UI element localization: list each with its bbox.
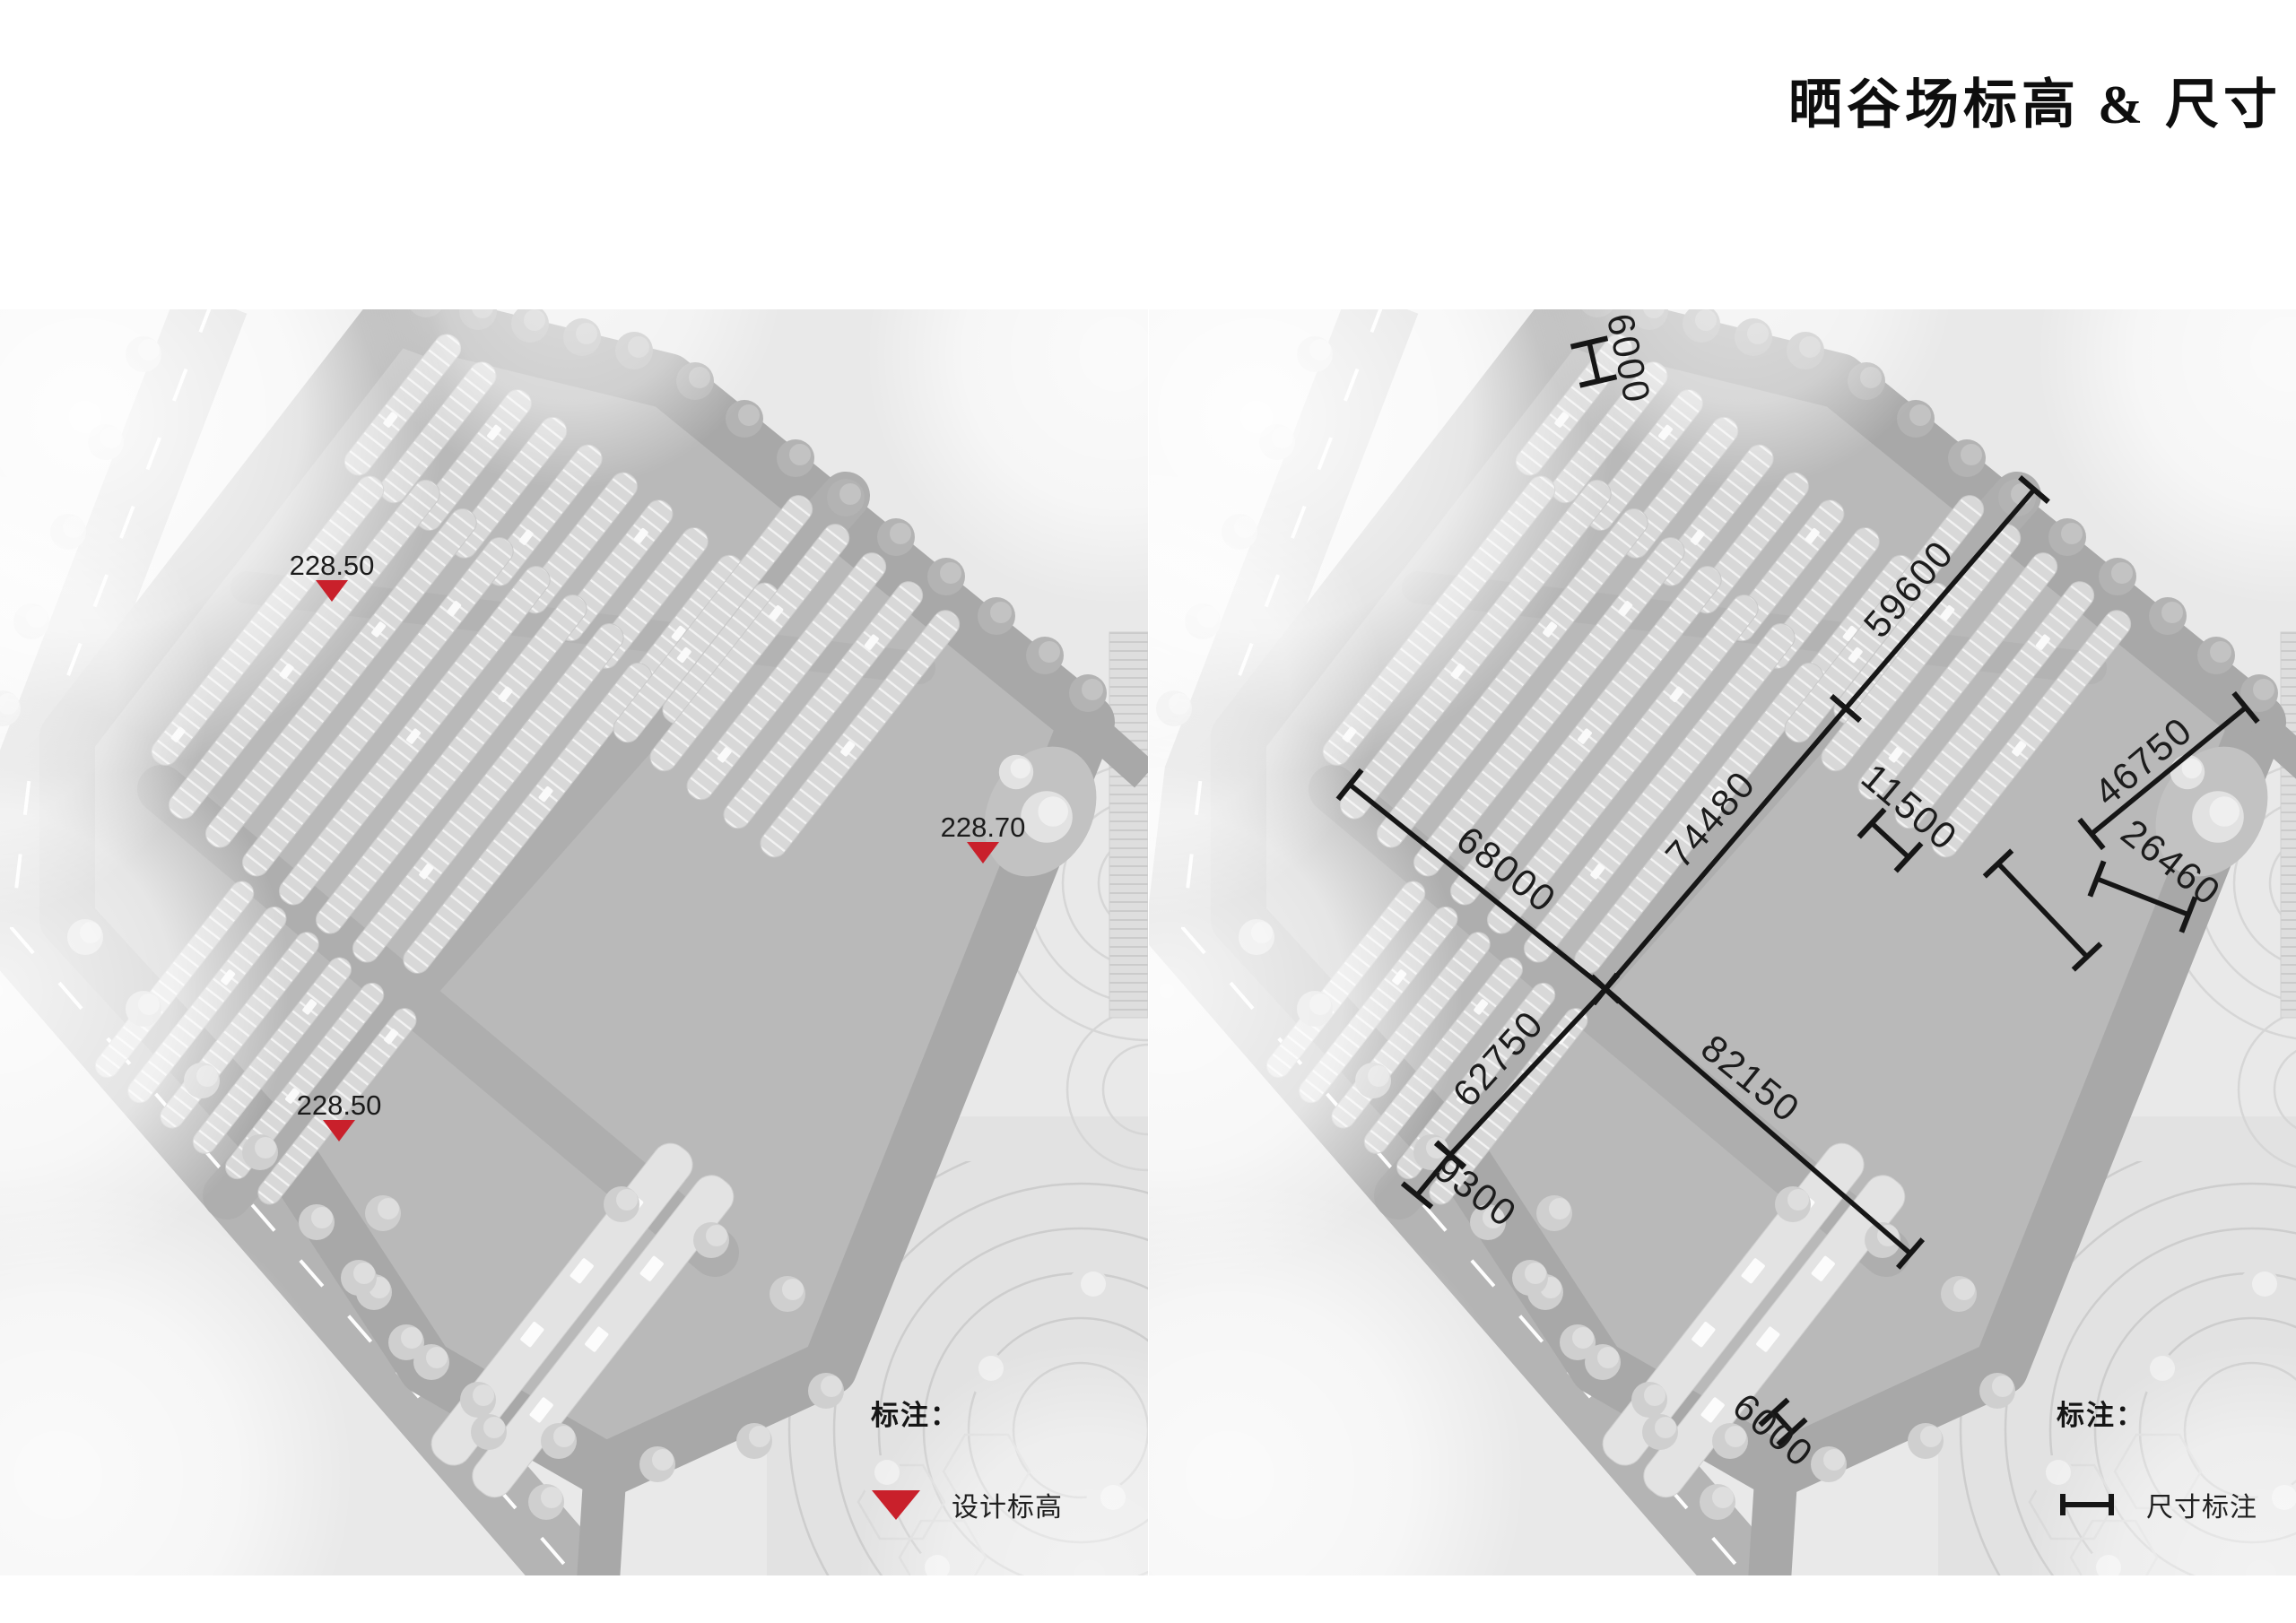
dimension-line-82150: [1605, 989, 1910, 1254]
panel-elevation-plan: 228.50 228.70 228.50 标注： 设: [0, 309, 1149, 1575]
elevation-marker: 228.50: [297, 1089, 382, 1141]
page-title: 晒谷场标高 & 尺寸: [1788, 61, 2282, 139]
design-elevation-triangle-icon: [871, 1488, 923, 1522]
legend-heading: 标注：: [2057, 1393, 2257, 1433]
dimension-line-icon: [2057, 1493, 2118, 1516]
elevation-value: 228.70: [941, 811, 1026, 843]
dimension-annotations: 6000 59600 46750 26460 11500 74480 68000…: [1149, 309, 2296, 1575]
legend-dimension: 标注： 尺寸标注: [2057, 1393, 2257, 1524]
dimension-label-74480: 74480: [1657, 762, 1764, 876]
dimension-line-74480: [1605, 708, 1846, 989]
legend-item-label: 设计标高: [952, 1485, 1063, 1524]
dimension-label-6000-top: 6000: [1599, 309, 1659, 407]
dimension-label-9300: 9300: [1427, 1147, 1525, 1236]
elevation-triangle-icon: [323, 1120, 355, 1141]
dimension-line-unlabeled: [1998, 864, 2087, 957]
dimension-label-62750: 62750: [1444, 1002, 1552, 1115]
elevation-marker: 228.50: [290, 550, 375, 602]
legend-elevation: 标注： 设计标高: [871, 1393, 1063, 1524]
dimension-line-6000-top: [1589, 343, 1598, 381]
dimension-label-11500: 11500: [1854, 755, 1966, 859]
dimension-label-6000-bottom: 6000: [1725, 1384, 1822, 1475]
elevation-triangle-icon: [316, 580, 348, 602]
site-plan-scene: 6000 59600 46750 26460 11500 74480 68000…: [1149, 309, 2296, 1575]
dimension-line-68000: [1350, 785, 1605, 989]
elevation-triangle-icon: [967, 842, 999, 864]
elevation-value: 228.50: [290, 550, 375, 581]
elevation-value: 228.50: [297, 1089, 382, 1121]
dimension-label-26460: 26460: [2114, 811, 2230, 914]
panel-dimension-plan: 6000 59600 46750 26460 11500 74480 68000…: [1149, 309, 2296, 1575]
site-plan-scene: 228.50 228.70 228.50 标注： 设: [0, 309, 1148, 1575]
legend-heading: 标注：: [871, 1393, 1063, 1433]
elevation-marker: 228.70: [941, 811, 1026, 864]
elevation-annotations: 228.50 228.70 228.50: [0, 309, 1148, 1575]
slide-page: 晒谷场标高 & 尺寸 228.50 228.70 228.50: [0, 0, 2296, 1623]
legend-item-label: 尺寸标注: [2146, 1485, 2257, 1524]
dimension-label-68000: 68000: [1449, 818, 1565, 921]
